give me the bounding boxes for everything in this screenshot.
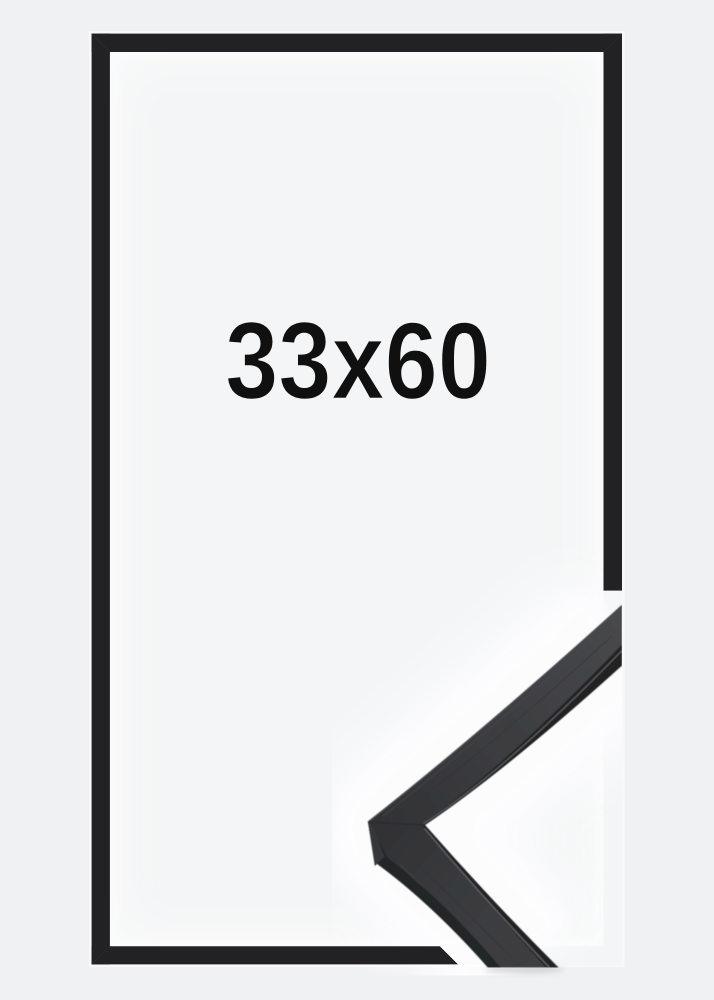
svg-text:33x60: 33x60 bbox=[225, 300, 491, 423]
